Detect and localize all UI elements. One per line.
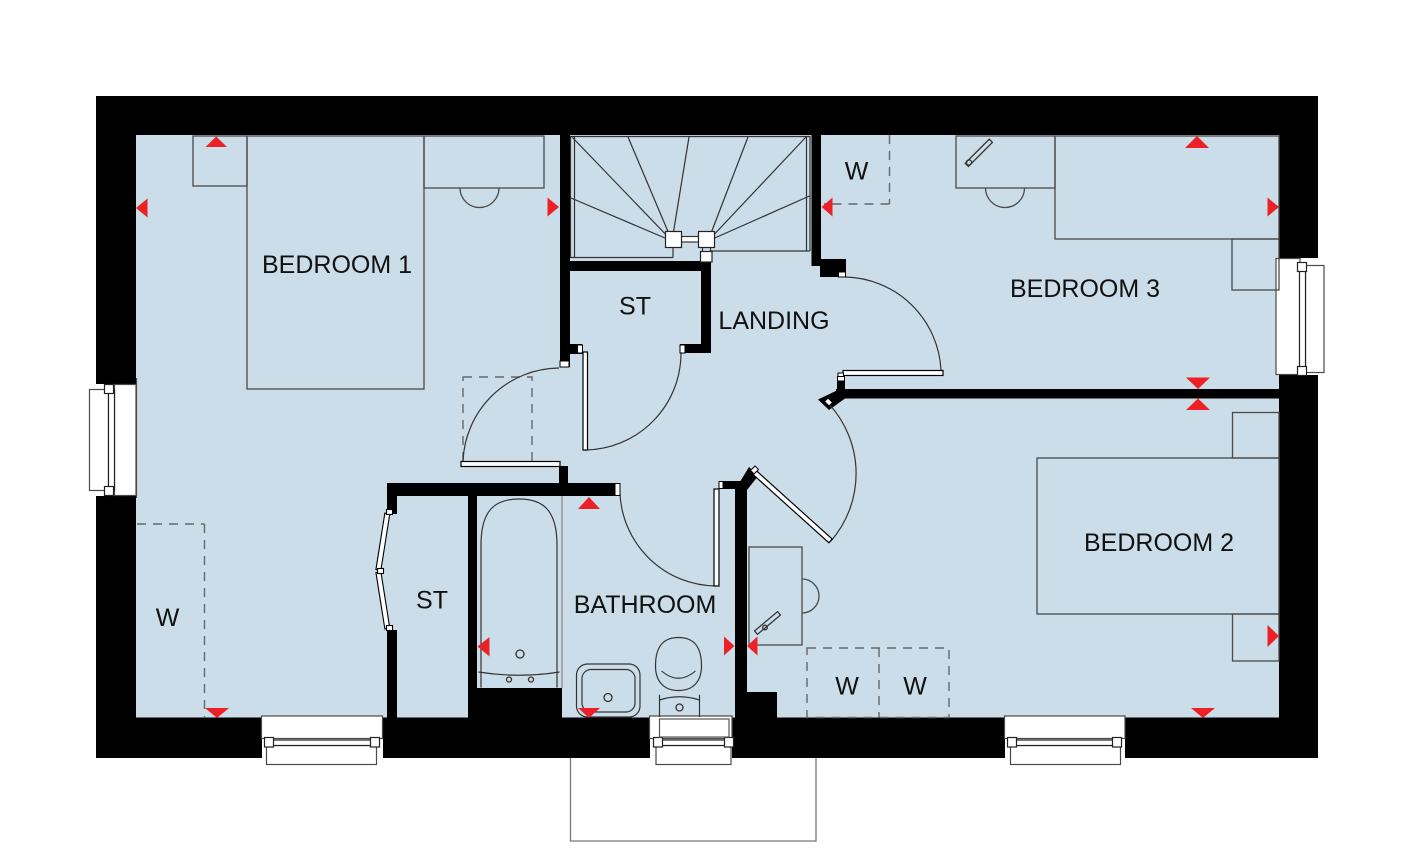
svg-text:W: W bbox=[156, 604, 180, 632]
svg-text:BEDROOM 3: BEDROOM 3 bbox=[1010, 275, 1160, 303]
svg-text:BEDROOM 1: BEDROOM 1 bbox=[262, 251, 412, 279]
svg-text:W: W bbox=[903, 673, 927, 701]
svg-text:W: W bbox=[835, 673, 859, 701]
svg-text:W: W bbox=[845, 158, 869, 186]
svg-text:BATHROOM: BATHROOM bbox=[574, 591, 717, 619]
svg-text:LANDING: LANDING bbox=[718, 307, 829, 335]
svg-text:ST: ST bbox=[416, 587, 448, 615]
svg-text:BEDROOM 2: BEDROOM 2 bbox=[1084, 529, 1234, 557]
svg-text:ST: ST bbox=[619, 293, 651, 321]
